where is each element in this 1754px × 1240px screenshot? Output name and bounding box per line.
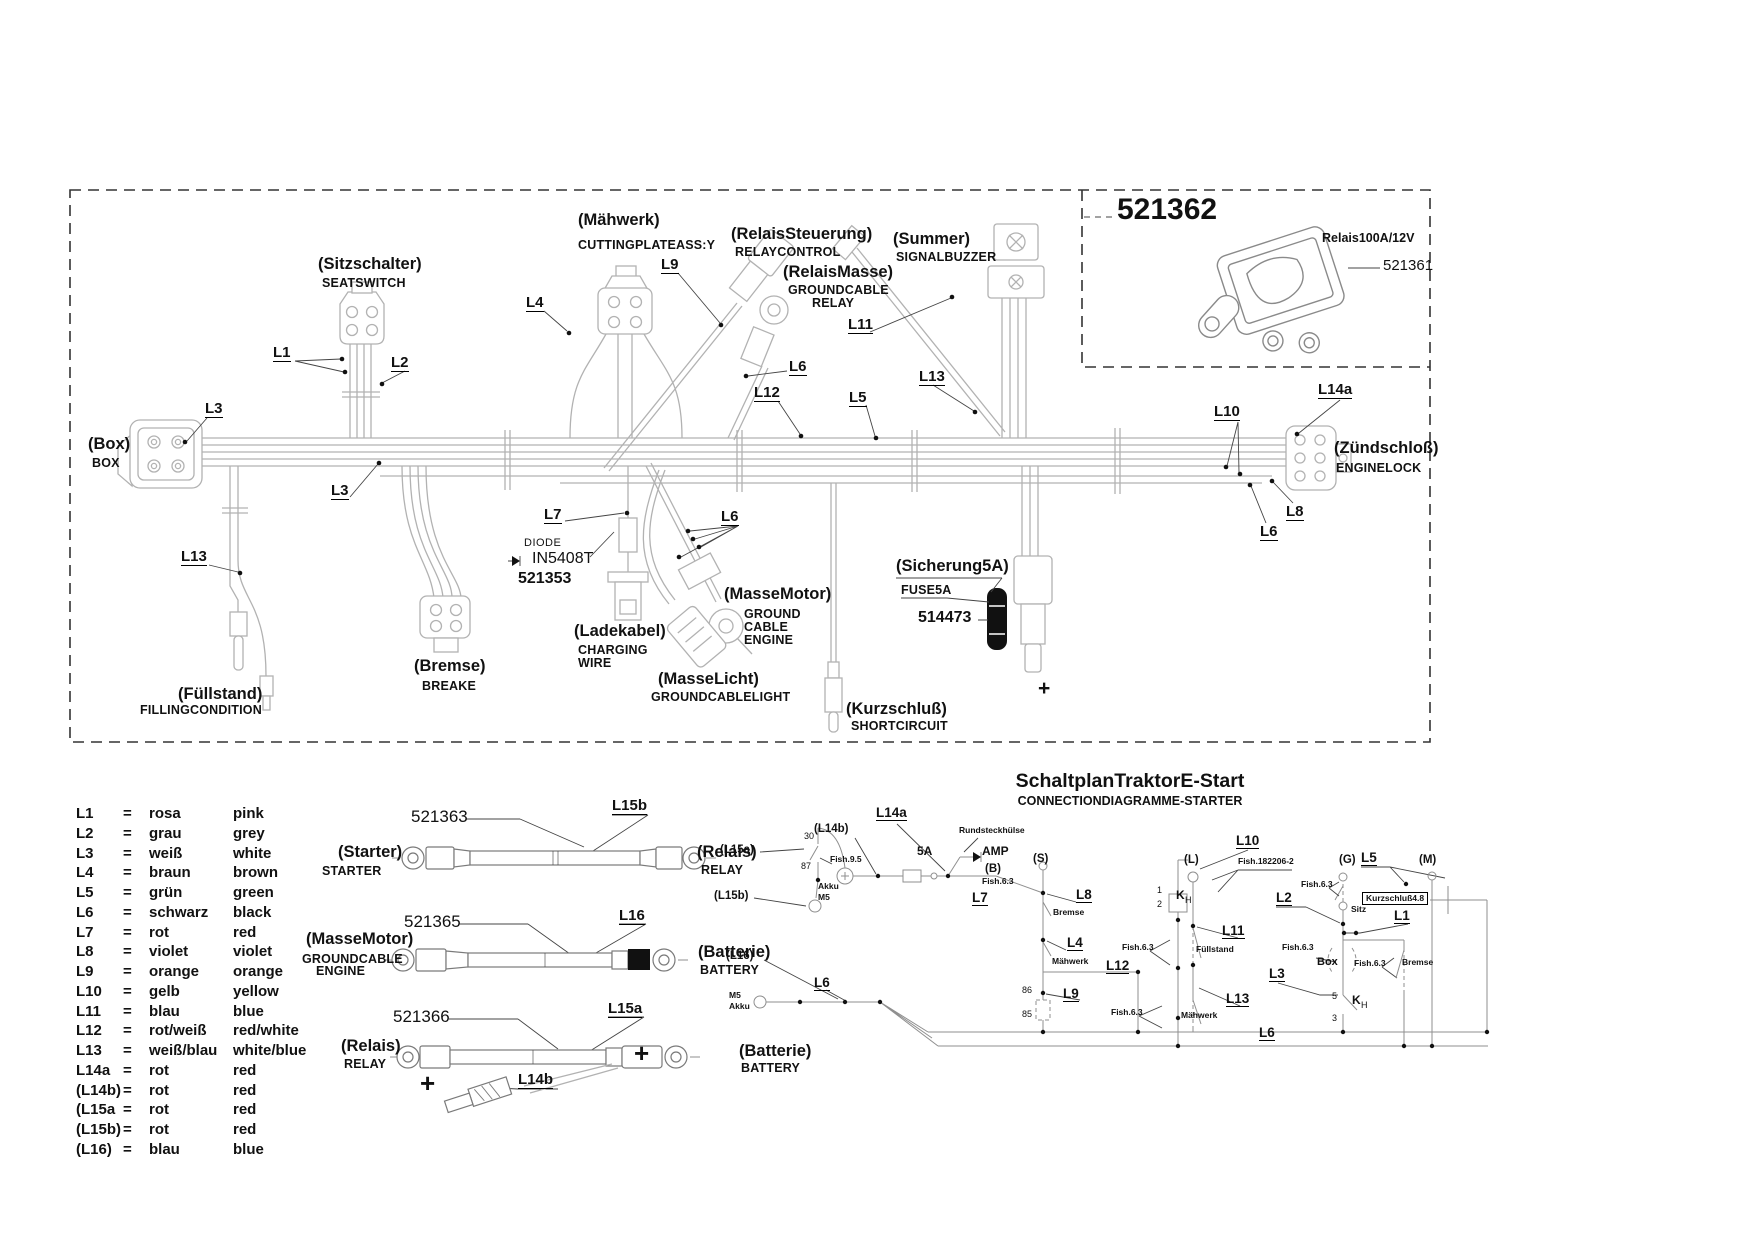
legend-color-german: rot — [149, 1081, 233, 1101]
legend-wire-code: L13 — [76, 1041, 123, 1061]
legend-row: L1=rosapink — [76, 804, 306, 824]
connector-fuse-stack — [1014, 556, 1052, 672]
legend-color-german: rot — [149, 1120, 233, 1140]
relay-illustration — [1176, 224, 1358, 384]
legend-wire-code: L12 — [76, 1021, 123, 1041]
part-number-521361: 521361 — [1383, 257, 1433, 274]
relay-name-label: Relais100A/12V — [1322, 231, 1414, 245]
legend-color-english: white — [233, 845, 271, 862]
legend-equals: = — [123, 982, 149, 1002]
legend-color-english: pink — [233, 805, 264, 822]
legend-wire-code: L3 — [76, 844, 123, 864]
legend-equals: = — [123, 1140, 149, 1160]
legend-row: L9=orangeorange — [76, 962, 306, 982]
fuse-5a — [987, 588, 1007, 650]
legend-wire-code: L5 — [76, 883, 123, 903]
legend-color-german: blau — [149, 1002, 233, 1022]
part-number-521362: 521362 — [1117, 193, 1217, 227]
legend-color-german: orange — [149, 962, 233, 982]
legend-wire-code: (L16) — [76, 1140, 123, 1160]
legend-equals: = — [123, 863, 149, 883]
legend-equals: = — [123, 1002, 149, 1022]
legend-equals: = — [123, 1081, 149, 1101]
connector-mower — [598, 266, 652, 334]
connector-relay-ground-ring — [741, 296, 788, 367]
legend-color-english: orange — [233, 963, 283, 980]
legend-color-german: blau — [149, 1140, 233, 1160]
legend-row: L5=grüngreen — [76, 883, 306, 903]
legend-equals: = — [123, 804, 149, 824]
legend-color-english: blue — [233, 1141, 264, 1158]
legend-wire-code: L14a — [76, 1061, 123, 1081]
legend-equals: = — [123, 1041, 149, 1061]
legend-color-english: violet — [233, 943, 272, 960]
legend-color-german: weiß/blau — [149, 1041, 233, 1061]
connector-brake — [420, 596, 470, 652]
legend-equals: = — [123, 903, 149, 923]
legend-equals: = — [123, 844, 149, 864]
legend-wire-code: L11 — [76, 1002, 123, 1022]
connector-short-circuit — [825, 662, 842, 732]
schematic-title: SchaltplanTraktorE-Start — [960, 770, 1300, 793]
legend-color-english: red — [233, 1082, 256, 1099]
legend-wire-code: L8 — [76, 942, 123, 962]
legend-wire-code: L9 — [76, 962, 123, 982]
connector-charging-wire — [608, 572, 648, 620]
connector-seat-switch — [340, 282, 384, 344]
legend-wire-code: L6 — [76, 903, 123, 923]
wiring-diagram-page: .g1{stroke:#b2b2b2;fill:none;stroke-widt… — [0, 0, 1754, 1240]
legend-row: (L14b)=rotred — [76, 1081, 306, 1101]
legend-equals: = — [123, 883, 149, 903]
legend-color-german: grün — [149, 883, 233, 903]
legend-color-english: black — [233, 904, 271, 921]
legend-row: (L15a=rotred — [76, 1100, 306, 1120]
legend-color-english: brown — [233, 864, 278, 881]
legend-color-english: red — [233, 1101, 256, 1118]
legend-equals: = — [123, 1120, 149, 1140]
legend-wire-code: L7 — [76, 923, 123, 943]
cable-assembly-521366 — [390, 1046, 700, 1114]
legend-row: L2=graugrey — [76, 824, 306, 844]
legend-wire-code: (L15b) — [76, 1120, 123, 1140]
legend-wire-code: (L14b) — [76, 1081, 123, 1101]
diode-component — [508, 518, 637, 566]
legend-color-german: grau — [149, 824, 233, 844]
connector-box — [118, 420, 202, 488]
leader-lines — [183, 273, 1340, 1089]
legend-wire-code: L4 — [76, 863, 123, 883]
legend-color-german: gelb — [149, 982, 233, 1002]
legend-wire-code: L2 — [76, 824, 123, 844]
legend-row: L8=violetviolet — [76, 942, 306, 962]
legend-equals: = — [123, 824, 149, 844]
legend-color-english: yellow — [233, 983, 279, 1000]
legend-row: L4=braunbrown — [76, 863, 306, 883]
schematic-wires — [754, 824, 1489, 1048]
cable-assembly-521365 — [384, 949, 688, 971]
legend-color-english: red — [233, 924, 256, 941]
legend-color-german: rot — [149, 1061, 233, 1081]
legend-row: L10=gelbyellow — [76, 982, 306, 1002]
legend-wire-code: L10 — [76, 982, 123, 1002]
legend-row: L11=blaublue — [76, 1002, 306, 1022]
connector-relay-control — [726, 229, 794, 304]
legend-row: (L15b)=rotred — [76, 1120, 306, 1140]
schematic-subtitle: CONNECTIONDIAGRAMME-STARTER — [960, 794, 1300, 808]
legend-color-english: blue — [233, 1003, 264, 1020]
connector-fill-level — [230, 612, 273, 710]
legend-equals: = — [123, 923, 149, 943]
legend-equals: = — [123, 942, 149, 962]
legend-color-english: red/white — [233, 1022, 299, 1039]
legend-wire-code: L1 — [76, 804, 123, 824]
legend-equals: = — [123, 1021, 149, 1041]
legend-row: L7=rotred — [76, 923, 306, 943]
legend-equals: = — [123, 1100, 149, 1120]
legend-row: (L16)=blaublue — [76, 1140, 306, 1160]
legend-wire-code: (L15a — [76, 1100, 123, 1120]
legend-row: L6=schwarzblack — [76, 903, 306, 923]
legend-color-german: weiß — [149, 844, 233, 864]
legend-color-english: red — [233, 1121, 256, 1138]
legend-color-english: red — [233, 1062, 256, 1079]
connector-buzzer — [832, 224, 1044, 298]
wire-color-legend: L1=rosapink L2=graugrey L3=weißwhite L4=… — [76, 804, 306, 1160]
legend-color-german: violet — [149, 942, 233, 962]
legend-color-english: white/blue — [233, 1042, 306, 1059]
legend-color-german: schwarz — [149, 903, 233, 923]
legend-color-german: rot — [149, 1100, 233, 1120]
legend-equals: = — [123, 962, 149, 982]
legend-row: L13=weiß/blauwhite/blue — [76, 1041, 306, 1061]
legend-color-english: grey — [233, 825, 265, 842]
legend-row: L12=rot/weißred/white — [76, 1021, 306, 1041]
legend-color-german: rot/weiß — [149, 1021, 233, 1041]
legend-row: L14a=rotred — [76, 1061, 306, 1081]
legend-row: L3=weißwhite — [76, 844, 306, 864]
cable-assembly-521363 — [392, 847, 716, 869]
legend-color-german: rot — [149, 923, 233, 943]
legend-color-english: green — [233, 884, 274, 901]
legend-color-german: rosa — [149, 804, 233, 824]
legend-equals: = — [123, 1061, 149, 1081]
legend-color-german: braun — [149, 863, 233, 883]
